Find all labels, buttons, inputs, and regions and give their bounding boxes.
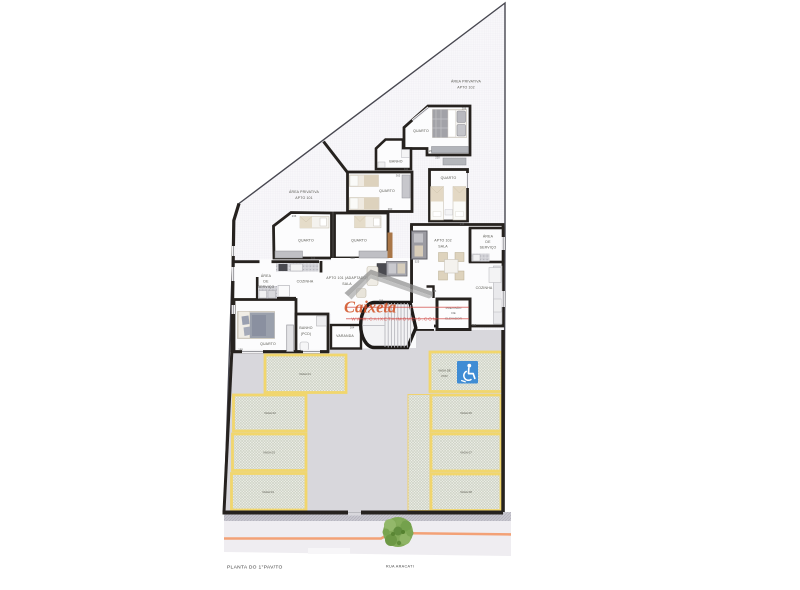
svg-text:COZINHA: COZINHA (297, 280, 314, 284)
svg-text:APTO 102: APTO 102 (457, 86, 474, 90)
svg-text:APTO 102: APTO 102 (434, 239, 451, 243)
svg-text:235: 235 (460, 222, 465, 226)
svg-text:325: 325 (427, 149, 432, 153)
svg-text:VAGA 01: VAGA 01 (299, 372, 311, 376)
svg-text:QUARTO: QUARTO (260, 342, 276, 346)
svg-text:ÁREA PRIVATIVA: ÁREA PRIVATIVA (451, 80, 481, 84)
svg-text:QUARTO: QUARTO (298, 239, 314, 243)
svg-text:VAGA 03: VAGA 03 (263, 451, 275, 455)
svg-text:525: 525 (415, 260, 420, 264)
svg-text:305: 305 (311, 257, 316, 261)
svg-text:SERVIÇO: SERVIÇO (258, 285, 275, 289)
svg-text:WWW.CAIXETAIMOVEIS.COM: WWW.CAIXETAIMOVEIS.COM (351, 316, 437, 321)
svg-text:(PCD): (PCD) (301, 332, 311, 336)
svg-text:PCD: PCD (441, 374, 447, 378)
svg-text:110: 110 (472, 323, 477, 327)
svg-text:APTO 101: APTO 101 (295, 196, 312, 200)
svg-text:PLANTA DO 1°PAV/TO: PLANTA DO 1°PAV/TO (227, 565, 283, 571)
svg-text:ÁREA: ÁREA (261, 274, 272, 278)
svg-text:360: 360 (388, 207, 393, 211)
svg-text:BANHO: BANHO (389, 160, 402, 164)
svg-text:DE: DE (263, 280, 269, 284)
svg-text:VAGA DE: VAGA DE (438, 369, 451, 373)
svg-text:365: 365 (396, 174, 401, 178)
svg-text:DE: DE (485, 240, 491, 244)
svg-text:VAGA 02: VAGA 02 (264, 411, 276, 415)
svg-text:COZINHA: COZINHA (476, 286, 493, 290)
svg-text:111: 111 (404, 167, 409, 171)
svg-text:236: 236 (292, 214, 297, 218)
svg-text:DE: DE (451, 311, 455, 315)
svg-text:BANHO: BANHO (299, 326, 312, 330)
svg-text:SALA: SALA (342, 282, 352, 286)
svg-text:220: 220 (435, 156, 440, 160)
svg-text:164: 164 (350, 326, 355, 330)
svg-text:VAGA 04: VAGA 04 (262, 490, 274, 494)
svg-text:SALA: SALA (438, 245, 448, 249)
svg-text:Caixeta: Caixeta (344, 298, 396, 317)
svg-text:VAGA 06: VAGA 06 (460, 411, 472, 415)
svg-text:ÁREA PRIVATIVA: ÁREA PRIVATIVA (289, 190, 319, 194)
svg-text:SERVIÇO: SERVIÇO (480, 246, 497, 250)
svg-text:ÁREA: ÁREA (483, 235, 494, 239)
svg-text:300: 300 (350, 256, 355, 260)
svg-text:VAGA 07: VAGA 07 (460, 451, 472, 455)
svg-text:QUARTO: QUARTO (441, 176, 457, 180)
svg-text:VARANDA: VARANDA (336, 334, 354, 338)
svg-text:RUA ARACATI: RUA ARACATI (386, 565, 414, 569)
svg-text:QUARTO: QUARTO (351, 239, 367, 243)
svg-text:QUARTO: QUARTO (379, 189, 395, 193)
svg-text:188: 188 (238, 348, 243, 352)
svg-text:VAGA 08: VAGA 08 (460, 490, 472, 494)
svg-text:QUARTO: QUARTO (413, 129, 429, 133)
svg-text:206: 206 (462, 107, 467, 111)
